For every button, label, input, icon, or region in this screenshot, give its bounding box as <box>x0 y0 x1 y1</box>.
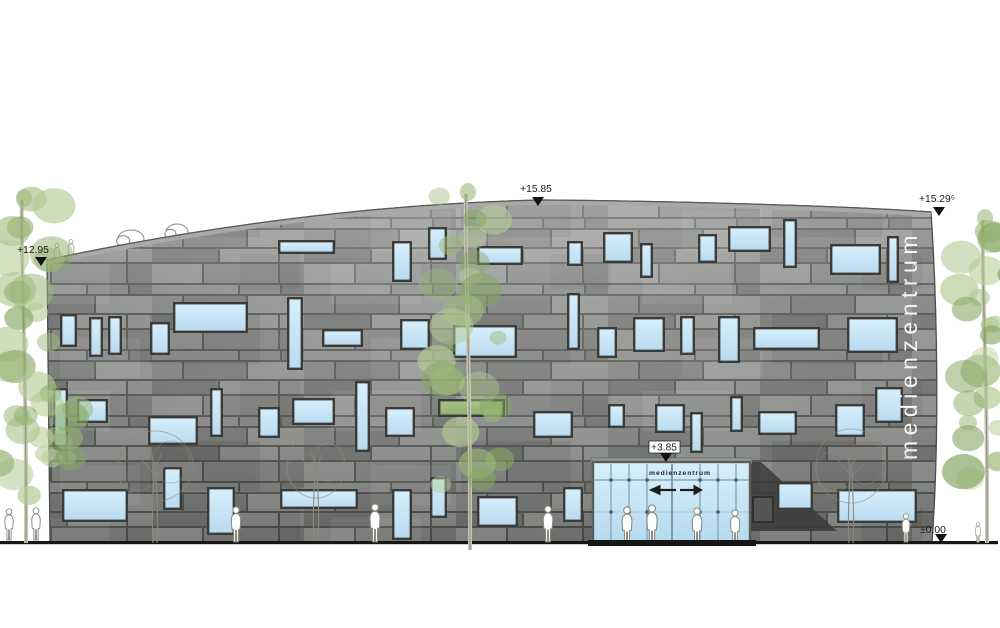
window <box>563 487 583 522</box>
window <box>322 329 363 347</box>
window <box>830 244 881 275</box>
window <box>567 293 580 350</box>
window <box>680 316 695 355</box>
window <box>655 404 685 433</box>
window <box>89 317 103 357</box>
window <box>633 317 665 352</box>
window <box>280 489 358 509</box>
window <box>163 467 182 510</box>
person-on-ground <box>5 509 13 540</box>
window <box>758 411 797 435</box>
window <box>60 314 77 347</box>
window <box>690 412 703 453</box>
window <box>835 404 865 437</box>
elevation-label: ±0.00 <box>920 525 946 536</box>
green-tree <box>940 209 1000 543</box>
window <box>730 396 743 432</box>
window <box>477 496 518 527</box>
person-on-ground <box>975 523 980 543</box>
entrance: medienzentrum <box>591 458 752 543</box>
window <box>292 398 335 425</box>
entrance-sign-text: medienzentrum <box>649 470 711 477</box>
window <box>210 388 223 437</box>
window <box>608 404 625 428</box>
window <box>287 297 303 370</box>
window <box>847 317 898 353</box>
window <box>753 327 820 350</box>
window <box>355 381 370 452</box>
level-triangle-icon <box>933 207 945 216</box>
window <box>62 489 128 522</box>
window <box>718 316 740 363</box>
window <box>698 234 717 263</box>
building-name-vertical-text: medienzentrum <box>896 230 922 460</box>
elevation-label: +15.29⁵ <box>919 194 955 205</box>
person-on-ground <box>32 508 41 540</box>
elevation-label: +3.85 <box>651 443 677 454</box>
window <box>392 241 412 282</box>
building-elevation-scene: medienzentrum+15.85+15.29⁵+12.95+3.85±0.… <box>0 0 1000 628</box>
window <box>603 232 633 263</box>
window <box>400 319 430 350</box>
window <box>728 226 771 252</box>
window <box>640 243 653 278</box>
window <box>533 411 573 438</box>
window <box>150 322 170 355</box>
window <box>783 219 797 268</box>
building-elevation-svg: medienzentrum+15.85+15.29⁵+12.95+3.85±0.… <box>0 0 1000 628</box>
window <box>392 489 412 540</box>
window <box>597 327 617 358</box>
window <box>385 407 415 437</box>
elevation-label: +12.95 <box>17 245 49 256</box>
elevation-label: +15.85 <box>520 184 552 195</box>
window <box>278 240 335 254</box>
window <box>777 482 813 510</box>
elevation-drawing: medienzentrum+15.85+15.29⁵+12.95+3.85±0.… <box>0 0 1000 628</box>
window <box>567 241 583 266</box>
window <box>108 316 122 355</box>
window <box>258 407 280 438</box>
window <box>207 487 235 535</box>
window <box>173 302 248 333</box>
